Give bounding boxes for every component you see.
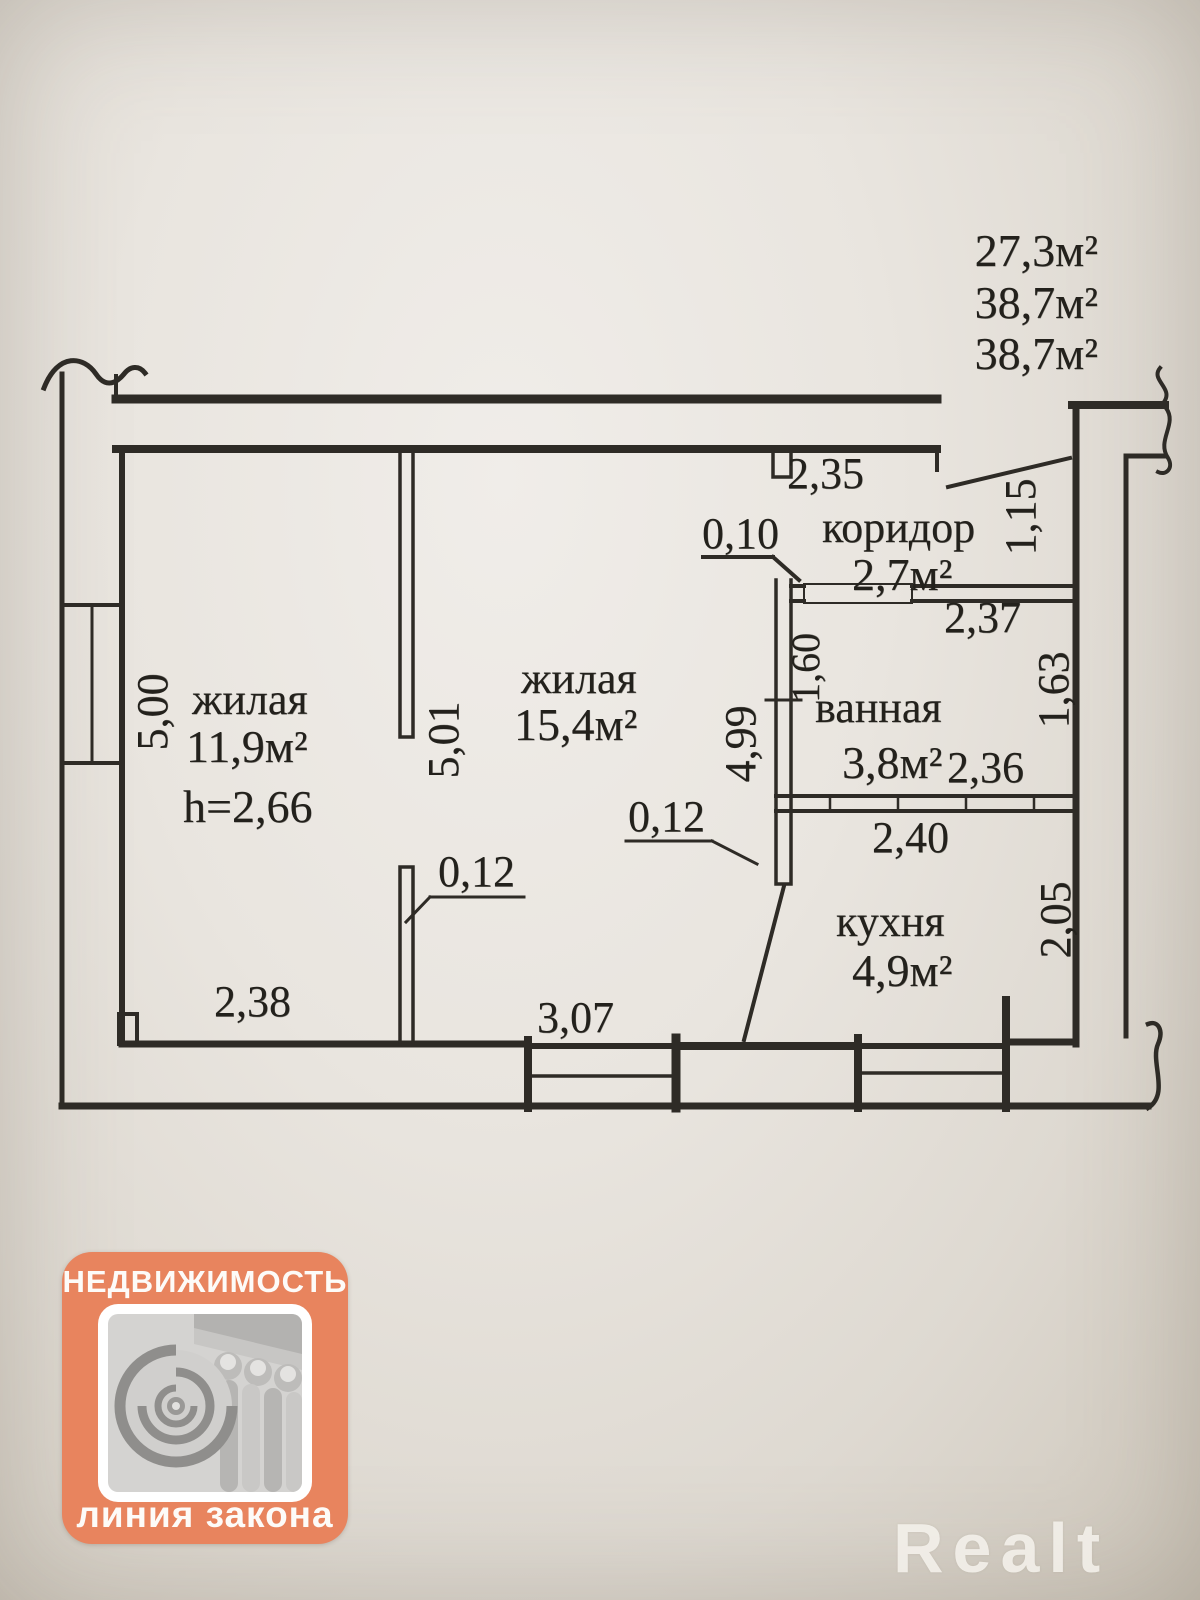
wall-break-symbol-top-right xyxy=(1158,368,1167,402)
area-label-kitchen: 4,9м² xyxy=(852,948,952,994)
room-label-bathroom: ванная xyxy=(815,686,942,730)
wall-break-symbol-bottom-right xyxy=(1148,1023,1160,1108)
dimension-0-12-left: 0,12 xyxy=(438,850,515,894)
area-label-bathroom: 3,8м² xyxy=(842,740,942,786)
total-area-line-1: 27,3м² xyxy=(928,228,1098,274)
agency-logo-title: НЕДВИЖИМОСТЬ xyxy=(62,1264,348,1300)
dimension-0-12-mid: 0,12 xyxy=(628,795,705,839)
dimension-2-38: 2,38 xyxy=(214,980,291,1024)
dimension-3-07: 3,07 xyxy=(537,996,614,1040)
dimension-5-00: 5,00 xyxy=(131,674,175,751)
dimension-0-10: 0,10 xyxy=(702,512,779,556)
dimension-1-60: 1,60 xyxy=(786,633,826,703)
scanned-floor-plan-page: 27,3м² 38,7м² 38,7м² 2,35 0,10 коридор 2… xyxy=(0,0,1200,1600)
dimension-1-63: 1,63 xyxy=(1032,652,1076,729)
room-label-living-2: жилая xyxy=(521,657,637,701)
total-area-line-2: 38,7м² xyxy=(928,280,1098,326)
dimension-2-37: 2,37 xyxy=(944,596,1021,640)
agency-logo: НЕДВИЖИМОСТЬ xyxy=(62,1252,348,1544)
area-label-living-2: 15,4м² xyxy=(514,702,637,748)
dimension-2-36: 2,36 xyxy=(947,746,1024,790)
dimension-2-35: 2,35 xyxy=(787,452,864,496)
agency-logo-subtitle: линия закона xyxy=(62,1494,348,1536)
dimension-2-05: 2,05 xyxy=(1034,882,1078,959)
ceiling-height-label: h=2,66 xyxy=(183,784,312,830)
column-capital-image xyxy=(98,1304,312,1502)
room-label-kitchen: кухня xyxy=(836,900,945,944)
dimension-2-40: 2,40 xyxy=(872,816,949,860)
realt-watermark: Realt xyxy=(893,1508,1109,1588)
dimension-5-01: 5,01 xyxy=(422,702,466,779)
dimension-4-99: 4,99 xyxy=(719,706,763,783)
wall-break-symbol-top-left xyxy=(44,361,145,388)
kitchen-door-leaf xyxy=(744,886,784,1040)
dimension-1-15: 1,15 xyxy=(999,479,1043,556)
area-label-corridor: 2,7м² xyxy=(852,552,952,598)
room-label-corridor: коридор xyxy=(822,506,975,550)
area-label-living-1: 11,9м² xyxy=(186,724,308,770)
total-area-line-3: 38,7м² xyxy=(928,331,1098,377)
room-label-living-1: жилая xyxy=(192,678,308,722)
